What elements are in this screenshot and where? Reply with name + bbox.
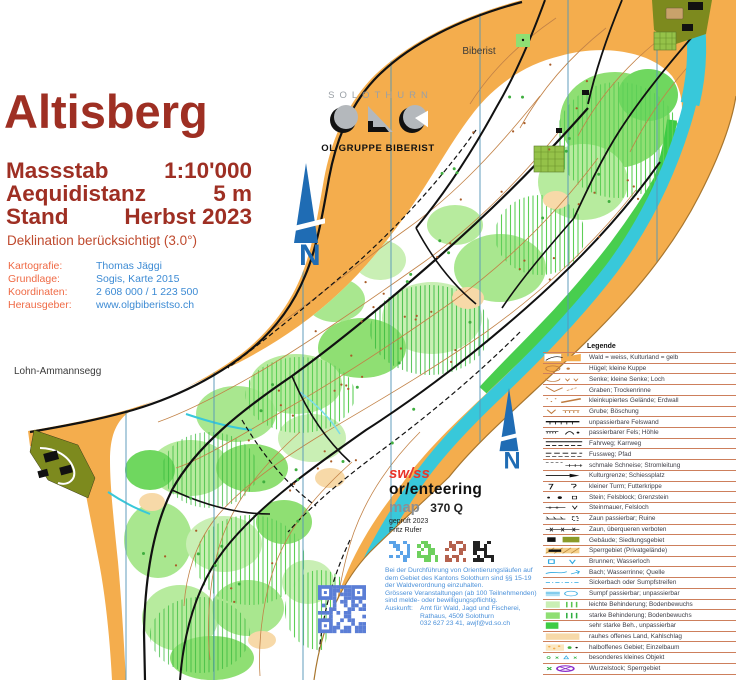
metadata-value: Thomas Jäggi [96, 260, 162, 273]
legend-row: schmale Schneise; Stromleitung [543, 459, 736, 470]
olg-monogram-icon [328, 101, 428, 137]
legend-label: Grube; Böschung [589, 408, 639, 415]
metadata-row: Grundlage:Sogis, Karte 2015 [8, 273, 198, 286]
legend-label: Stein; Felsblock; Grenzstein [589, 494, 669, 501]
passable-rock-cave-icon [543, 428, 589, 437]
narrow-ride-power-line-icon [543, 460, 589, 469]
legend-row: Kulturgrenze; Schiessplatz [543, 470, 736, 481]
legend-label: kleinkupiertes Gelände; Erdwall [589, 397, 679, 404]
metadata-value: www.olgbiberistso.ch [96, 299, 194, 312]
club-logo: SOLOTHURN OL GRUPPE BIBERIST [300, 90, 456, 154]
status-label: Stand [6, 205, 69, 228]
forbidden-fence-icon [543, 525, 589, 534]
legend-label: sehr starke Beh., unpassierbar [589, 622, 676, 629]
qr-code [318, 585, 366, 637]
legend-row: halboffenes Gebiet; Einzelbaum [543, 641, 736, 652]
map-poster: N N Altisberg Massstab1:10'000 Aequidist… [0, 0, 736, 680]
gravel-pit-bank-icon [543, 407, 589, 416]
north-arrow-icon: N [287, 163, 325, 267]
legend-row: Zaun passierbar; Ruine [543, 513, 736, 524]
legend-label: Hügel; kleine Kuppe [589, 365, 646, 372]
legend-row: Fussweg; Pfad [543, 448, 736, 459]
ditch-dry-gully-icon [543, 385, 589, 394]
broken-ground-earthwall-icon [543, 396, 589, 405]
legend-row: leichte Behinderung; Bodenbewuchs [543, 599, 736, 610]
north-letter: N [503, 448, 520, 474]
well-waterhole-icon [543, 557, 589, 566]
metadata-label: Grundlage: [8, 273, 96, 286]
vehicle-track-cart-track-icon [543, 439, 589, 448]
legend-row: Grube; Böschung [543, 406, 736, 417]
legend-title: Legende [587, 343, 736, 350]
rough-open-land-icon [543, 632, 589, 641]
forest-field-swatch-icon [543, 353, 589, 362]
print-pattern-squares [389, 541, 494, 562]
legend-label: Kulturgrenze; Schiessplatz [589, 472, 665, 479]
legend-row: unpassierbare Felswand [543, 416, 736, 427]
town-label-biberist: Biberist [450, 46, 508, 57]
impassable-cliff-icon [543, 418, 589, 427]
legend-row: Zaun, überqueren verboten [543, 524, 736, 535]
checker-name-label: Fritz Rufer [389, 527, 494, 534]
legend-row: Sumpf passierbar; unpassierbar [543, 588, 736, 599]
certification-block: sw/ss or/enteering map 370 Q geprüft 202… [389, 466, 494, 562]
footpath-trail-icon [543, 450, 589, 459]
metadata-row: Herausgeber:www.olgbiberistso.ch [8, 299, 198, 312]
legend-row: Steinmauer, Felsloch [543, 502, 736, 513]
seepage-marsh-strip-icon [543, 578, 589, 587]
contact-label [385, 620, 420, 628]
north-arrow-icon: N [494, 383, 524, 475]
legend-row: Brunnen; Wasserloch [543, 556, 736, 567]
print-pattern-square-icon [445, 541, 466, 562]
metadata-value: 2 608 000 / 1 223 500 [96, 286, 198, 299]
legend-label: Graben; Trockenrinne [589, 387, 651, 394]
special-small-object-icon [543, 653, 589, 662]
cultivation-boundary-shooting-range-icon [543, 471, 589, 480]
legend-row: Gebäude; Siedlungsgebiet [543, 534, 736, 545]
print-pattern-square-icon [389, 541, 410, 562]
legend-label: unpassierbare Felswand [589, 419, 659, 426]
legend-row: Graben; Trockenrinne [543, 384, 736, 395]
legend-row: Bach; Wasserrinne; Quelle [543, 566, 736, 577]
equidistance-label: Aequidistanz [6, 182, 146, 205]
legend-row: Stein; Felsblock; Grenzstein [543, 491, 736, 502]
legend-label: Zaun, überqueren verboten [589, 526, 666, 533]
checked-year-label: geprüft 2023 [389, 518, 494, 525]
legend-label: leichte Behinderung; Bodenbewuchs [589, 601, 693, 608]
legend-row: Sickerbach oder Sumpfstreifen [543, 577, 736, 588]
depression-pit-icon [543, 375, 589, 384]
very-strong-undergrowth-icon [543, 621, 589, 630]
club-region-label: SOLOTHURN [305, 90, 456, 101]
legend-row: kleinkupiertes Gelände; Erdwall [543, 395, 736, 406]
contact-label [385, 613, 420, 621]
legend-row: passierbarer Fels; Höhle [543, 427, 736, 438]
legend-label: rauhes offenes Land, Kahlschlag [589, 633, 682, 640]
legend-label: Zaun passierbar; Ruine [589, 515, 655, 522]
stone-wall-rock-hole-icon [543, 503, 589, 512]
brand-orienteering-label: or/enteering [389, 482, 494, 498]
legend-row: rauhes offenes Land, Kahlschlag [543, 631, 736, 642]
metadata-block: Kartografie:Thomas JäggiGrundlage:Sogis,… [8, 260, 198, 312]
legend-label: Wald = weiss, Kulturland = gelb [589, 354, 678, 361]
print-pattern-square-icon [473, 541, 494, 562]
legend-label: Brunnen; Wasserloch [589, 558, 650, 565]
legend-label: Gebäude; Siedlungsgebiet [589, 537, 664, 544]
club-name-label: OL GRUPPE BIBERIST [300, 143, 456, 154]
page-title: Altisberg [4, 84, 208, 139]
legend-row: besonderes kleines Objekt [543, 652, 736, 663]
legend-label: Sickerbach oder Sumpfstreifen [589, 579, 676, 586]
private-restricted-area-icon [543, 546, 589, 555]
metadata-label: Koordinaten: [8, 286, 96, 299]
scale-label: Massstab [6, 159, 109, 182]
passable-fence-ruin-icon [543, 514, 589, 523]
legend-label: Steinmauer, Felsloch [589, 504, 649, 511]
metadata-row: Kartografie:Thomas Jäggi [8, 260, 198, 273]
north-letter: N [299, 239, 321, 267]
legend-label: halboffenes Gebiet; Einzelbaum [589, 644, 679, 651]
contact-label: Auskunft: [385, 605, 420, 613]
legend-label: Fahrweg; Karrweg [589, 440, 641, 447]
metadata-value: Sogis, Karte 2015 [96, 273, 179, 286]
legend-label: Wurzelstock; Sperrgebiet [589, 665, 660, 672]
legend-label: Senke; kleine Senke; Loch [589, 376, 665, 383]
legend-label: passierbarer Fels; Höhle [589, 429, 659, 436]
equidistance-value: 5 m [213, 182, 252, 205]
scale-block: Massstab1:10'000 Aequidistanz5 m StandHe… [6, 159, 252, 228]
marsh-icon [543, 589, 589, 598]
metadata-label: Herausgeber: [8, 299, 96, 312]
legend-label: besonderes kleines Objekt [589, 654, 664, 661]
scale-value: 1:10'000 [164, 159, 252, 182]
semi-open-land-single-tree-icon [543, 643, 589, 652]
legend-row: Wald = weiss, Kulturland = gelb [543, 352, 736, 363]
stone-boulder-boundary-stone-icon [543, 493, 589, 502]
legend-row: Hügel; kleine Kuppe [543, 363, 736, 374]
print-pattern-square-icon [417, 541, 438, 562]
metadata-row: Koordinaten:2 608 000 / 1 223 500 [8, 286, 198, 299]
small-tower-feed-rack-icon [543, 482, 589, 491]
legend-label: Bach; Wasserrinne; Quelle [589, 569, 665, 576]
status-value: Herbst 2023 [124, 205, 252, 228]
legend-label: kleiner Turm; Futterkrippe [589, 483, 662, 490]
legend-row: Senke; kleine Senke; Loch [543, 373, 736, 384]
metadata-label: Kartografie: [8, 260, 96, 273]
stream-gully-spring-icon [543, 568, 589, 577]
legend-label: Fussweg; Pfad [589, 451, 631, 458]
legend-label: starke Behinderung; Bodenbewuchs [589, 612, 692, 619]
legend-label: Sperrgebiet (Privatgelände) [589, 547, 667, 554]
town-label-lohn-ammannsegg: Lohn-Ammannsegg [14, 366, 101, 377]
legend-row: kleiner Turm; Futterkrippe [543, 481, 736, 492]
legend-row: Wurzelstock; Sperrgebiet [543, 663, 736, 675]
contact-value: 032 627 23 41, awjf@vd.so.ch [420, 620, 510, 628]
building-settlement-icon [543, 535, 589, 544]
contact-value: Rathaus, 4509 Solothurn [420, 613, 494, 621]
legend-row: Fahrweg; Karrweg [543, 438, 736, 449]
legend-items: Wald = weiss, Kulturland = gelbHügel; kl… [543, 352, 736, 675]
hill-knoll-icon [543, 364, 589, 373]
legend-row: starke Behinderung; Bodenbewuchs [543, 609, 736, 620]
declination-note: Deklination berücksichtigt (3.0°) [7, 233, 197, 248]
map-word-label: map [389, 499, 420, 516]
brand-swiss-label: sw/ss [389, 466, 494, 481]
legend-label: Sumpf passierbar; unpassierbar [589, 590, 680, 597]
map-number-label: 370 Q [430, 501, 463, 515]
legend: Legende Wald = weiss, Kulturland = gelbH… [543, 343, 736, 675]
strong-undergrowth-icon [543, 611, 589, 620]
contact-value: Amt für Wald, Jagd und Fischerei, [420, 605, 520, 613]
legend-label: schmale Schneise; Stromleitung [589, 462, 680, 469]
legend-row: Sperrgebiet (Privatgelände) [543, 545, 736, 556]
legend-row: sehr starke Beh., unpassierbar [543, 620, 736, 631]
light-undergrowth-icon [543, 600, 589, 609]
rootstock-out-of-bounds-icon [543, 664, 589, 673]
